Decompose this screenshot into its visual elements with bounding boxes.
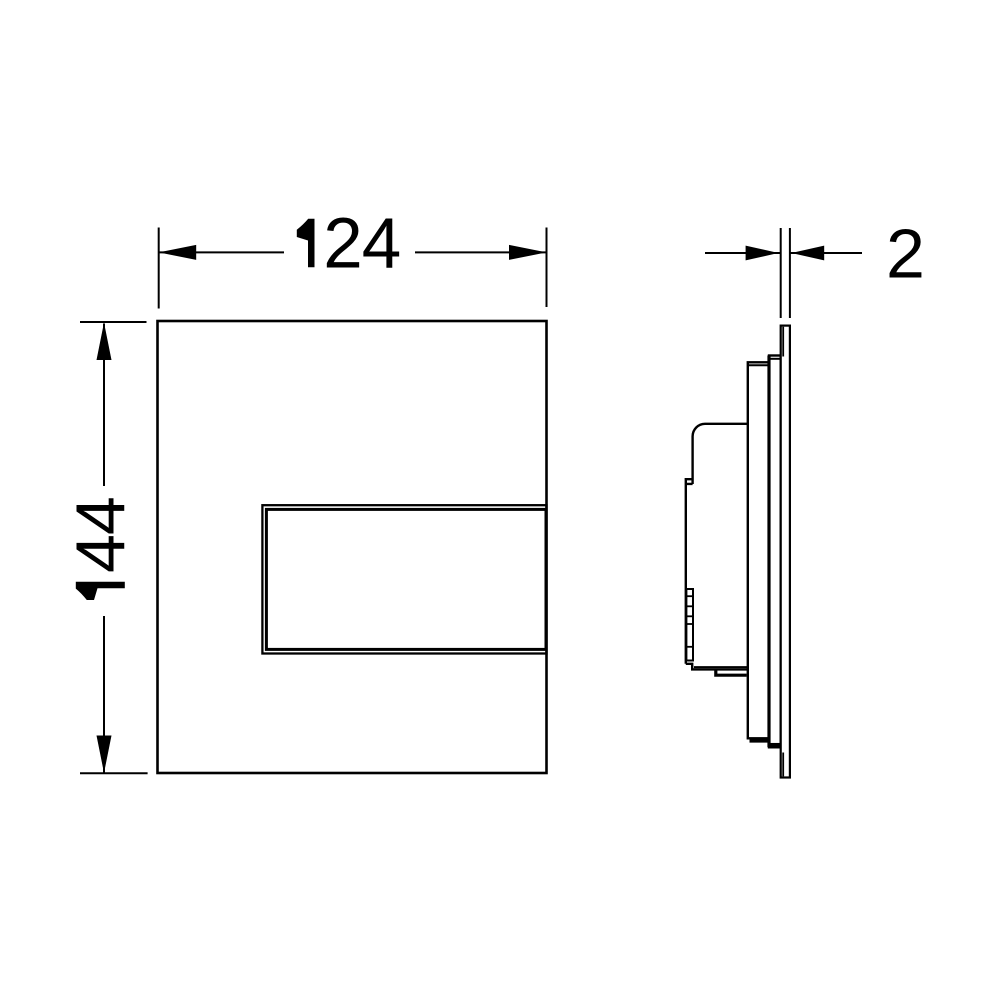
svg-text:4: 4 [62,496,140,535]
svg-text:4: 4 [62,534,140,573]
svg-text:4: 4 [362,205,402,284]
svg-text:2: 2 [323,205,363,284]
svg-text:2: 2 [886,214,925,292]
